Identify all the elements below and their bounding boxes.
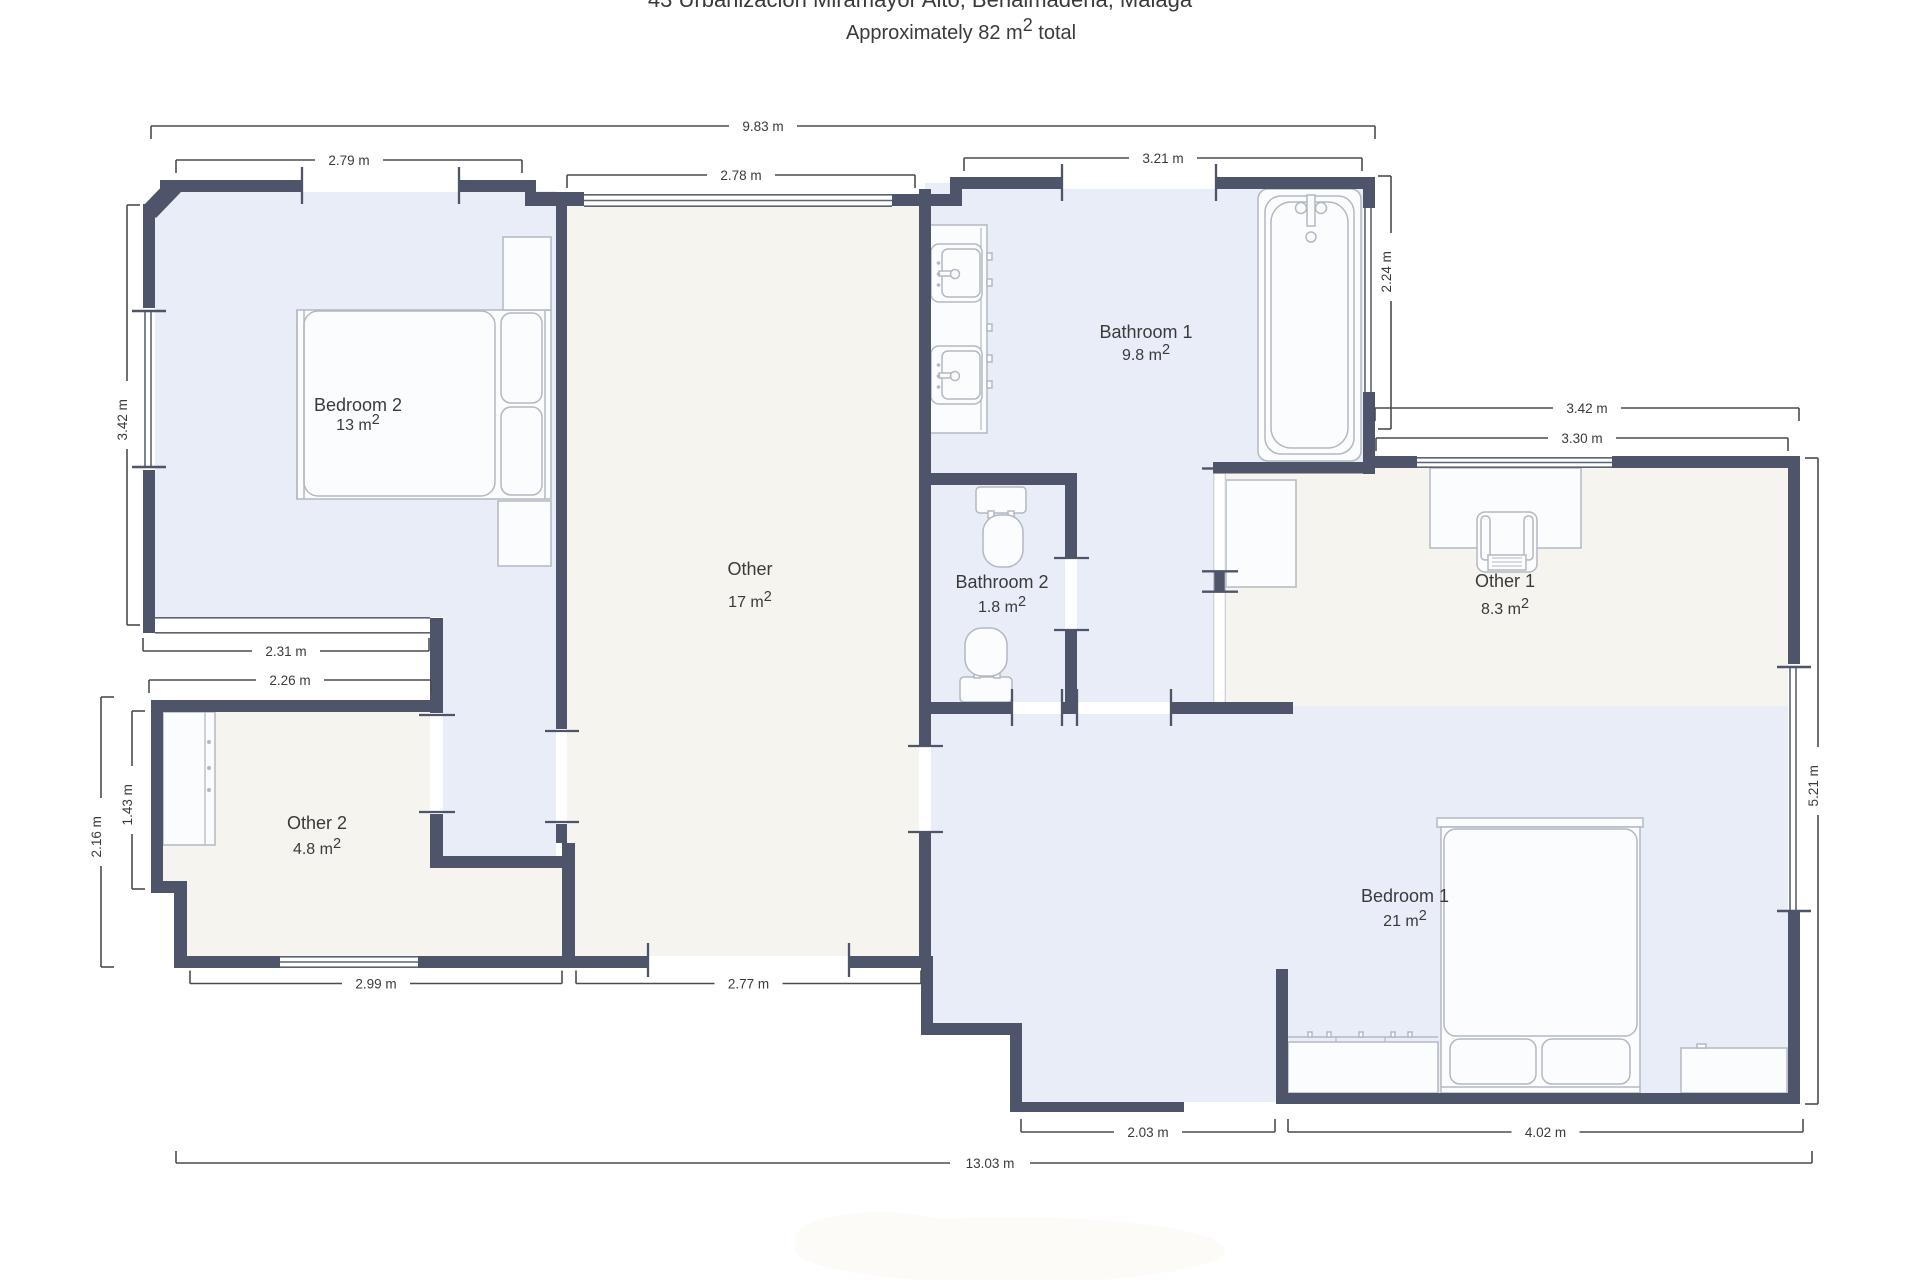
svg-text:2.03 m: 2.03 m (1127, 1125, 1168, 1140)
svg-text:1.43 m: 1.43 m (120, 784, 135, 825)
svg-text:Bathroom 1: Bathroom 1 (1099, 322, 1192, 342)
svg-text:2.26 m: 2.26 m (269, 673, 310, 688)
svg-text:13.03 m: 13.03 m (966, 1156, 1015, 1171)
svg-text:Bedroom 1: Bedroom 1 (1361, 886, 1449, 906)
svg-text:3.30 m: 3.30 m (1561, 431, 1602, 446)
svg-text:Other 1: Other 1 (1475, 571, 1535, 591)
svg-text:Bathroom 2: Bathroom 2 (955, 572, 1048, 592)
svg-text:2.24 m: 2.24 m (1379, 251, 1394, 292)
svg-text:3.42 m: 3.42 m (1566, 401, 1607, 416)
svg-text:43 Urbanización Miramayor Alto: 43 Urbanización Miramayor Alto, Benalmád… (648, 0, 1193, 12)
svg-text:Bedroom 2: Bedroom 2 (314, 395, 402, 415)
svg-text:2.79 m: 2.79 m (328, 153, 369, 168)
svg-text:Other: Other (727, 559, 772, 579)
svg-text:2.99 m: 2.99 m (355, 976, 396, 991)
svg-text:9.83 m: 9.83 m (742, 119, 783, 134)
svg-text:Other 2: Other 2 (287, 813, 347, 833)
svg-text:2.16 m: 2.16 m (89, 816, 104, 857)
svg-text:2.31 m: 2.31 m (265, 644, 306, 659)
svg-text:2.78 m: 2.78 m (720, 168, 761, 183)
svg-text:5.21 m: 5.21 m (1806, 765, 1821, 806)
svg-text:2.77 m: 2.77 m (728, 976, 769, 991)
svg-text:3.21 m: 3.21 m (1142, 151, 1183, 166)
svg-text:3.42 m: 3.42 m (115, 399, 130, 440)
svg-text:4.02 m: 4.02 m (1525, 1125, 1566, 1140)
svg-text:Approximately 82 m2 total: Approximately 82 m2 total (846, 15, 1076, 44)
